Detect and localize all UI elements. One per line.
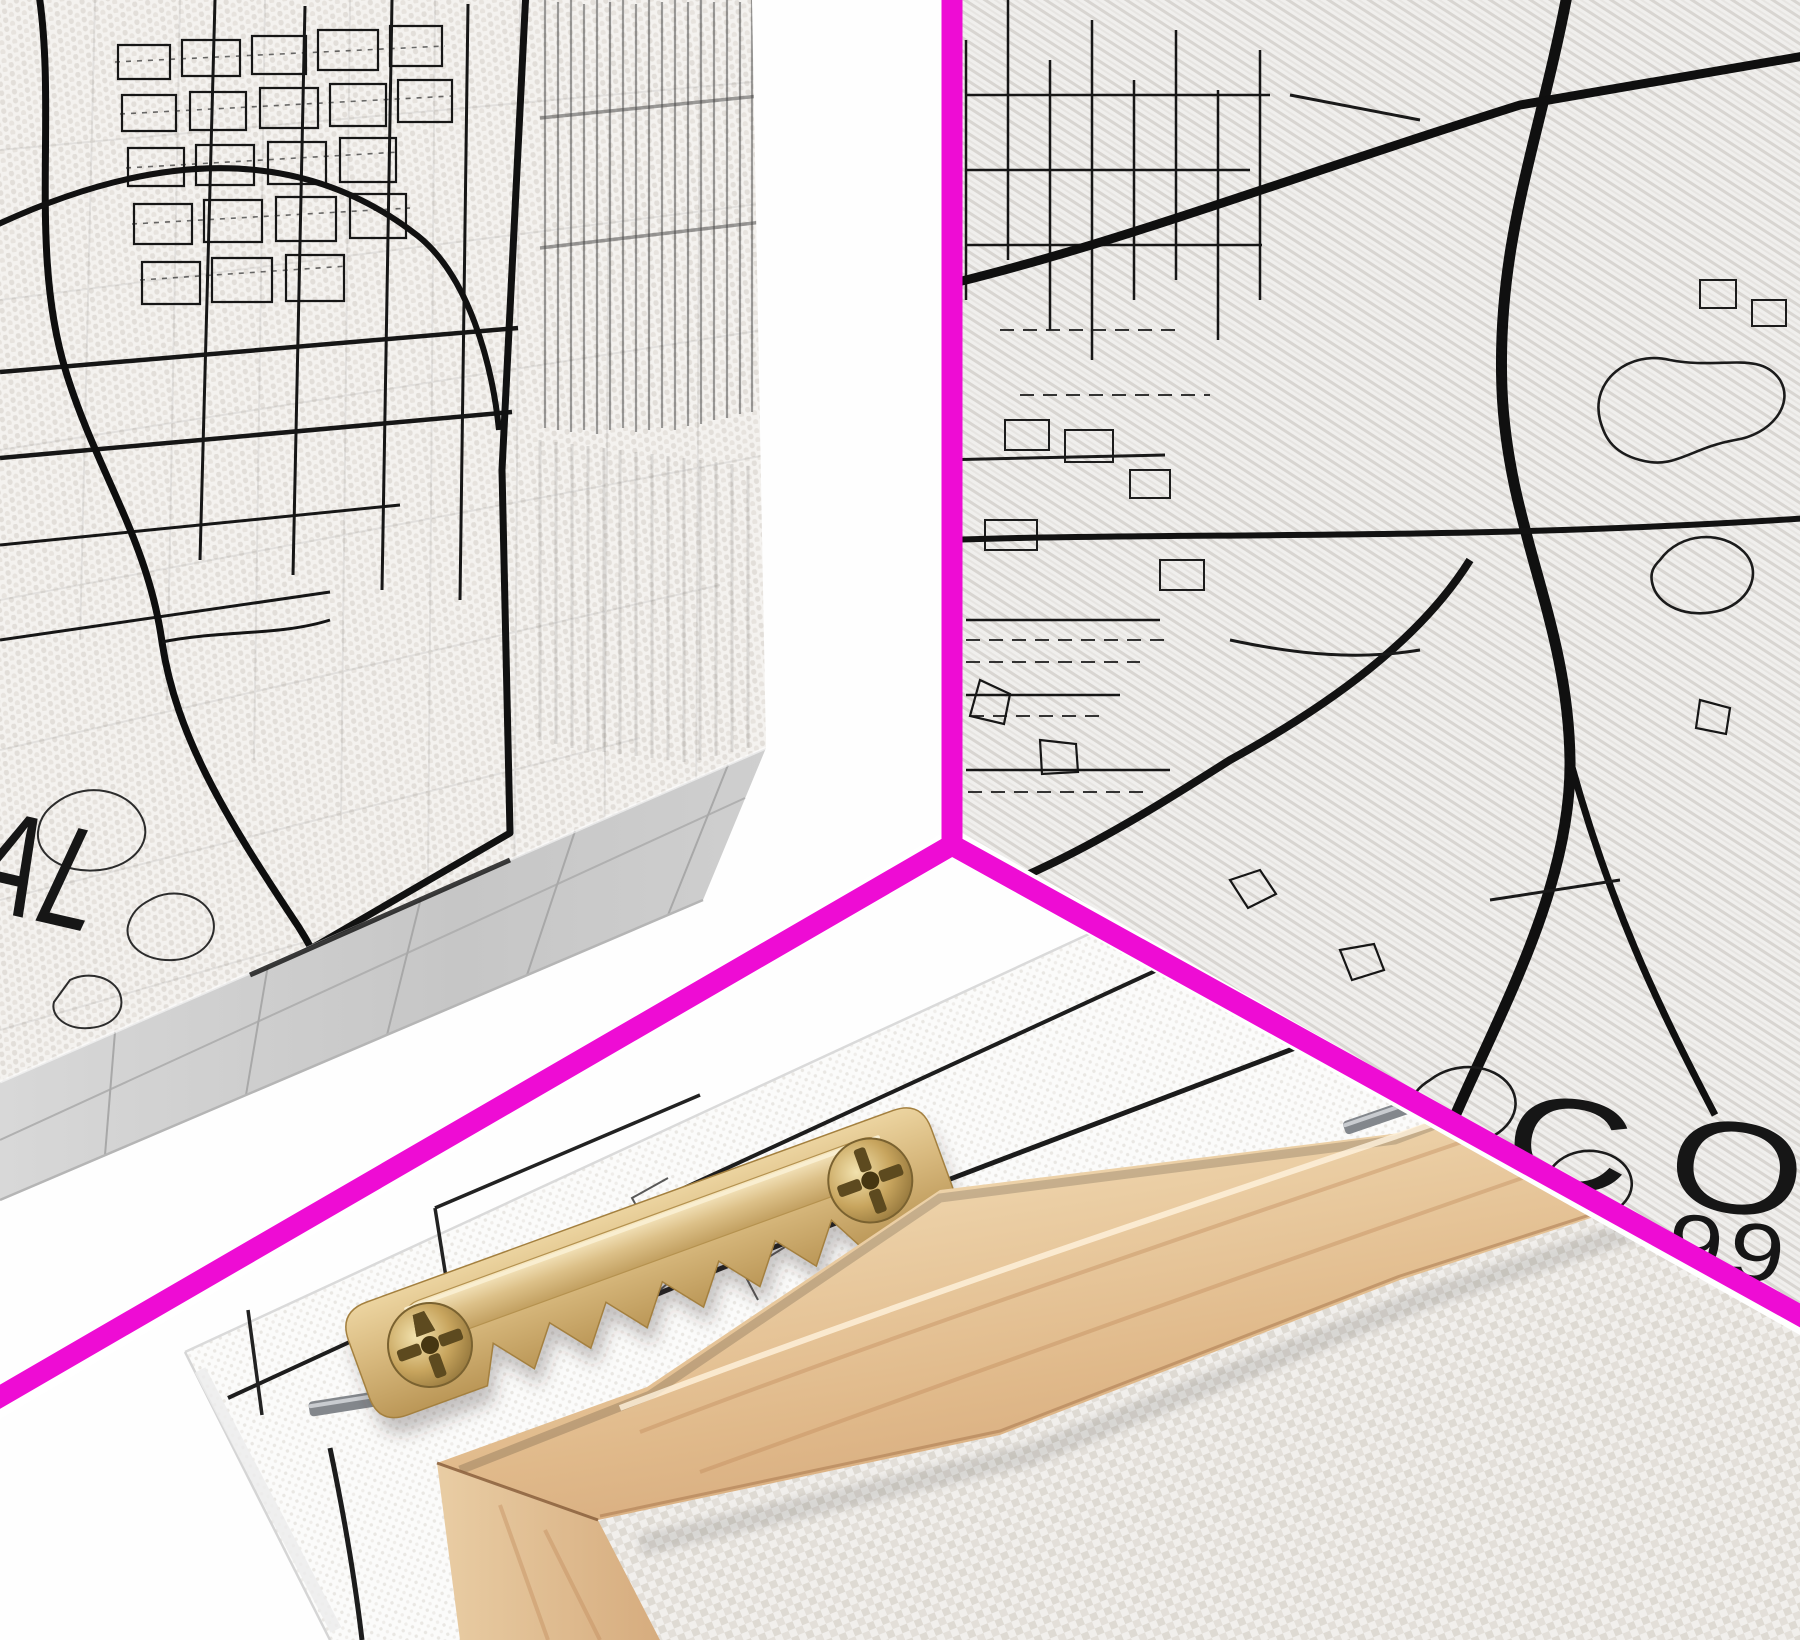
collage-graphic: AL: [0, 0, 1800, 1640]
product-collage: AL: [0, 0, 1800, 1640]
